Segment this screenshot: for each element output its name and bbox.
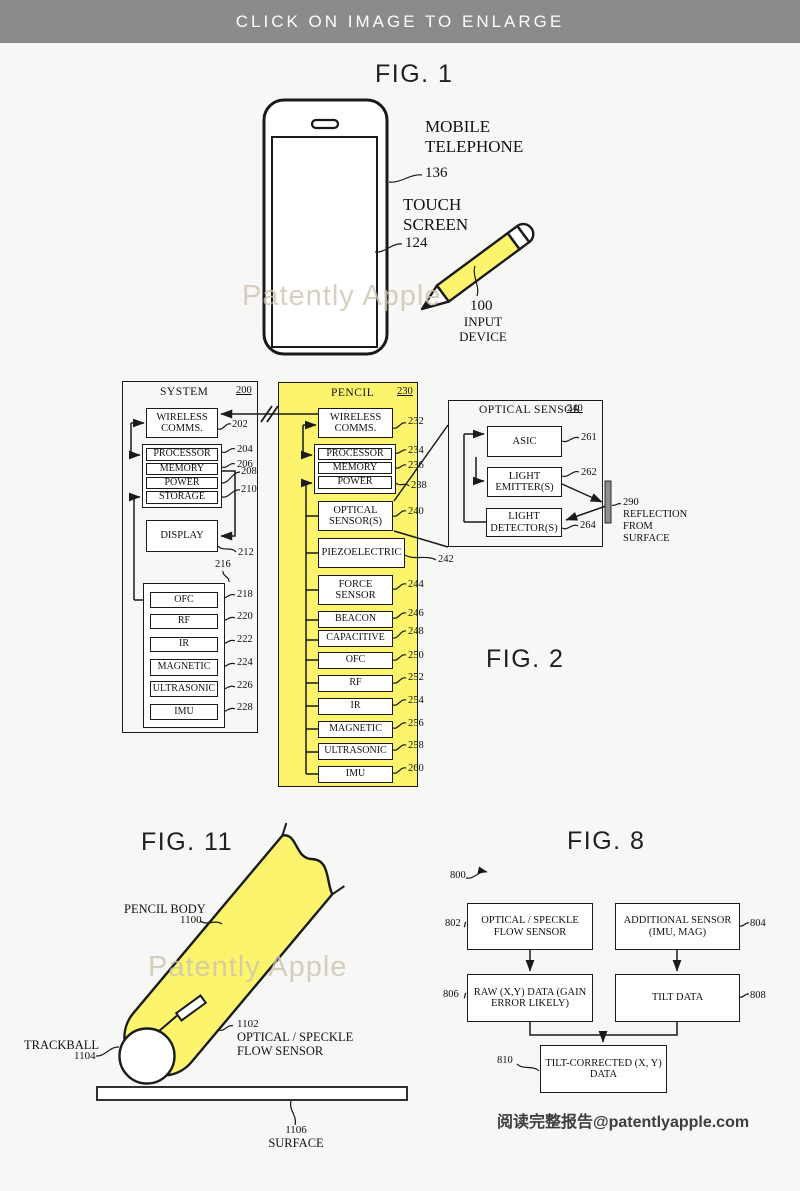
optical-speckle-flow-sensor-box: OPTICAL / SPECKLE FLOW SENSOR — [467, 903, 593, 950]
leader-line — [464, 993, 466, 998]
pencil-rf-box: RF — [318, 675, 393, 692]
pencil-ofc-box: OFC — [318, 652, 393, 669]
ref-804: 804 — [750, 918, 766, 929]
surface-illustration — [97, 1087, 407, 1100]
ref-232: 232 — [408, 416, 424, 427]
pencil-magnetic-box: MAGNETIC — [318, 721, 393, 738]
ref-236: 236 — [408, 460, 424, 471]
leader-line — [96, 1047, 119, 1056]
system-power-box: POWER — [146, 477, 218, 489]
system-title: SYSTEM — [160, 386, 208, 398]
pencil-power-box: POWER — [318, 476, 392, 489]
raw-xy-data-box: RAW (X,Y) DATA (GAIN ERROR LIKELY) — [467, 974, 593, 1022]
leader-line — [222, 449, 235, 453]
ref-808: 808 — [750, 990, 766, 1001]
light-emitters-box: LIGHT EMITTER(S) — [487, 467, 562, 497]
optical-sensor-title: OPTICAL SENSOR — [479, 404, 581, 416]
optical-speckle-flow-sensor-label: OPTICAL / SPECKLE FLOW SENSOR — [237, 1030, 359, 1059]
leader-line — [218, 424, 231, 429]
leader-line — [393, 745, 406, 750]
ref-242: 242 — [438, 554, 454, 565]
ref-100: 100 — [470, 298, 493, 315]
watermark-fig11: Patently Apple — [148, 951, 347, 984]
pencil-piezoelectric-box: PIEZOELECTRIC — [318, 538, 405, 568]
ref-204: 204 — [237, 444, 253, 455]
ref-256: 256 — [408, 718, 424, 729]
surface-label: SURFACE — [256, 1136, 336, 1150]
system-memory-box: MEMORY — [146, 463, 218, 475]
leader-line — [222, 490, 240, 497]
ref-136: 136 — [425, 165, 448, 182]
pencil-title: PENCIL — [331, 387, 374, 399]
pencil-memory-box: MEMORY — [318, 462, 392, 474]
leader-line — [393, 613, 406, 618]
ref-250: 250 — [408, 650, 424, 661]
ref-1100: 1100 — [180, 914, 202, 926]
ref-216: 216 — [215, 559, 231, 570]
pencil-beacon-box: BEACON — [318, 611, 393, 628]
leader-line — [466, 872, 487, 878]
leader-line — [396, 450, 406, 453]
leader-line — [218, 546, 236, 552]
input-device-label: INPUT DEVICE — [453, 315, 513, 345]
leader-line — [612, 504, 621, 506]
system-ofc-box: OFC — [150, 592, 218, 608]
ref-1106: 1106 — [256, 1124, 336, 1136]
leader-line — [223, 571, 229, 582]
ref-254: 254 — [408, 695, 424, 706]
footer-note: 阅读完整报告@patentlyapple.com — [497, 1108, 749, 1132]
leader-line — [562, 472, 579, 477]
pencil-ir-box: IR — [318, 698, 393, 715]
ref-290: 290 — [623, 497, 639, 508]
leader-line — [389, 175, 422, 182]
leader-line — [740, 923, 749, 926]
ref-260: 260 — [408, 763, 424, 774]
reflection-from-surface-label: REFLECTION FROM SURFACE — [623, 509, 695, 545]
leader-line — [393, 655, 406, 660]
ref-200: 200 — [236, 385, 252, 396]
leader-line — [517, 1064, 539, 1071]
ref-261: 261 — [581, 432, 597, 443]
fig1-title: FIG. 1 — [375, 60, 453, 89]
ref-1102: 1102 — [237, 1018, 259, 1030]
tilt-data-box: TILT DATA — [615, 974, 740, 1022]
touch-screen-label: TOUCH SCREEN — [403, 195, 495, 235]
pencil-processor-box: PROCESSOR — [318, 448, 392, 460]
ref-806: 806 — [443, 989, 459, 1000]
leader-line — [393, 678, 406, 683]
leader-line — [393, 700, 406, 705]
ref-208: 208 — [241, 466, 257, 477]
ref-800: 800 — [450, 870, 466, 881]
ref-1104: 1104 — [74, 1050, 96, 1062]
leader-line — [740, 994, 749, 997]
ref-246: 246 — [408, 608, 424, 619]
asic-box: ASIC — [487, 426, 562, 457]
ref-234: 234 — [408, 445, 424, 456]
ref-802: 802 — [445, 918, 461, 929]
watermark-fig1: Patently Apple — [242, 280, 441, 313]
ref-252: 252 — [408, 672, 424, 683]
system-wireless-comms-box: WIRELESS COMMS. — [146, 408, 218, 438]
pencil-imu-box: IMU — [318, 766, 393, 783]
fig11-title: FIG. 11 — [141, 828, 233, 857]
patent-figure-image[interactable]: CLICK ON IMAGE TO ENLARGE — [0, 0, 800, 1191]
system-ir-box: IR — [150, 637, 218, 652]
leader-line — [562, 525, 578, 529]
system-magnetic-box: MAGNETIC — [150, 659, 218, 676]
ref-226: 226 — [237, 680, 253, 691]
tilt-corrected-xy-data-box: TILT-CORRECTED (X, Y) DATA — [540, 1045, 667, 1093]
ref-222: 222 — [237, 634, 253, 645]
pencil-capacitive-box: CAPACITIVE — [318, 630, 393, 647]
ref-228: 228 — [237, 702, 253, 713]
system-storage-box: STORAGE — [146, 491, 218, 504]
ref-240-optical: 240 — [567, 403, 583, 414]
leader-line — [393, 631, 406, 638]
leader-line — [222, 472, 240, 483]
ref-124: 124 — [405, 235, 428, 252]
system-display-box: DISPLAY — [146, 520, 218, 552]
ref-240-pencil: 240 — [408, 506, 424, 517]
ref-218: 218 — [237, 589, 253, 600]
pencil-wireless-comms-box: WIRELESS COMMS. — [318, 408, 393, 438]
ref-262: 262 — [581, 467, 597, 478]
pencil-ultrasonic-box: ULTRASONIC — [318, 743, 393, 760]
ref-258: 258 — [408, 740, 424, 751]
reflection-surface-bar — [605, 481, 611, 523]
leader-line — [393, 768, 406, 773]
leader-line — [562, 437, 579, 441]
additional-sensor-box: ADDITIONAL SENSOR (IMU, MAG) — [615, 903, 740, 950]
leader-line — [393, 723, 406, 728]
system-rf-box: RF — [150, 614, 218, 629]
leader-line — [393, 584, 406, 589]
system-processor-box: PROCESSOR — [146, 448, 218, 461]
ref-212: 212 — [238, 547, 254, 558]
leader-line — [396, 465, 406, 468]
ref-264: 264 — [580, 520, 596, 531]
mobile-telephone-label: MOBILE TELEPHONE — [425, 117, 543, 157]
leader-line — [222, 464, 235, 468]
light-detectors-box: LIGHT DETECTOR(S) — [486, 508, 562, 537]
leader-line — [405, 555, 436, 560]
ref-224: 224 — [237, 657, 253, 668]
leader-line — [393, 423, 406, 428]
ref-244: 244 — [408, 579, 424, 590]
fig8-title: FIG. 8 — [567, 827, 645, 856]
system-ultrasonic-box: ULTRASONIC — [150, 681, 218, 697]
phone-illustration — [264, 100, 387, 354]
ref-230: 230 — [397, 386, 413, 397]
system-imu-box: IMU — [150, 704, 218, 720]
ref-202: 202 — [232, 419, 248, 430]
ref-210: 210 — [241, 484, 257, 495]
ref-248: 248 — [408, 626, 424, 637]
pencil-force-sensor-box: FORCE SENSOR — [318, 575, 393, 605]
trackball-illustration — [120, 1029, 175, 1084]
pencil-optical-sensors-box: OPTICAL SENSOR(S) — [318, 501, 393, 531]
ref-238: 238 — [411, 480, 427, 491]
ref-810: 810 — [497, 1055, 513, 1066]
fig2-title: FIG. 2 — [486, 645, 564, 674]
leader-line — [464, 922, 466, 927]
leader-line — [393, 511, 406, 516]
leader-line — [291, 1101, 296, 1125]
ref-220: 220 — [237, 611, 253, 622]
